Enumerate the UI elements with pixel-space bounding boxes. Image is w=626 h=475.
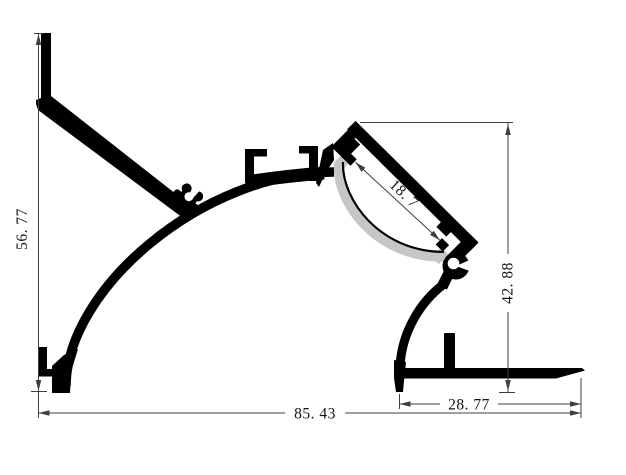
dim-left-height-label: 56. 77 [14, 208, 31, 250]
arc-to-channel-wedge [316, 143, 334, 187]
base-plate-stub [444, 333, 455, 370]
right-curved-wall [400, 284, 444, 366]
dim-right-height-label: 42. 88 [500, 262, 517, 304]
mounting-slot-left-arm [252, 149, 267, 157]
dim-right-base-width-label: 28. 77 [448, 397, 490, 414]
base-plate [398, 368, 585, 379]
mounting-slot-right-arm [299, 146, 310, 154]
technical-drawing-canvas: 18. 7 [0, 0, 626, 475]
aluminum-profile: 18. 7 [36, 33, 585, 393]
channel-far-lip [436, 238, 449, 251]
left-wall [36, 33, 190, 218]
main-arc-wall [66, 172, 334, 386]
left-hook-horizontal [38, 369, 63, 377]
screw-boss-bore [448, 258, 460, 270]
mounting-slot-right-wall [309, 146, 318, 181]
profile-drawing-svg: 18. 7 [0, 0, 626, 475]
dim-overall-width-label: 85. 43 [294, 406, 336, 423]
dimension-lines [31, 33, 581, 418]
diffuser-lens [321, 158, 445, 281]
